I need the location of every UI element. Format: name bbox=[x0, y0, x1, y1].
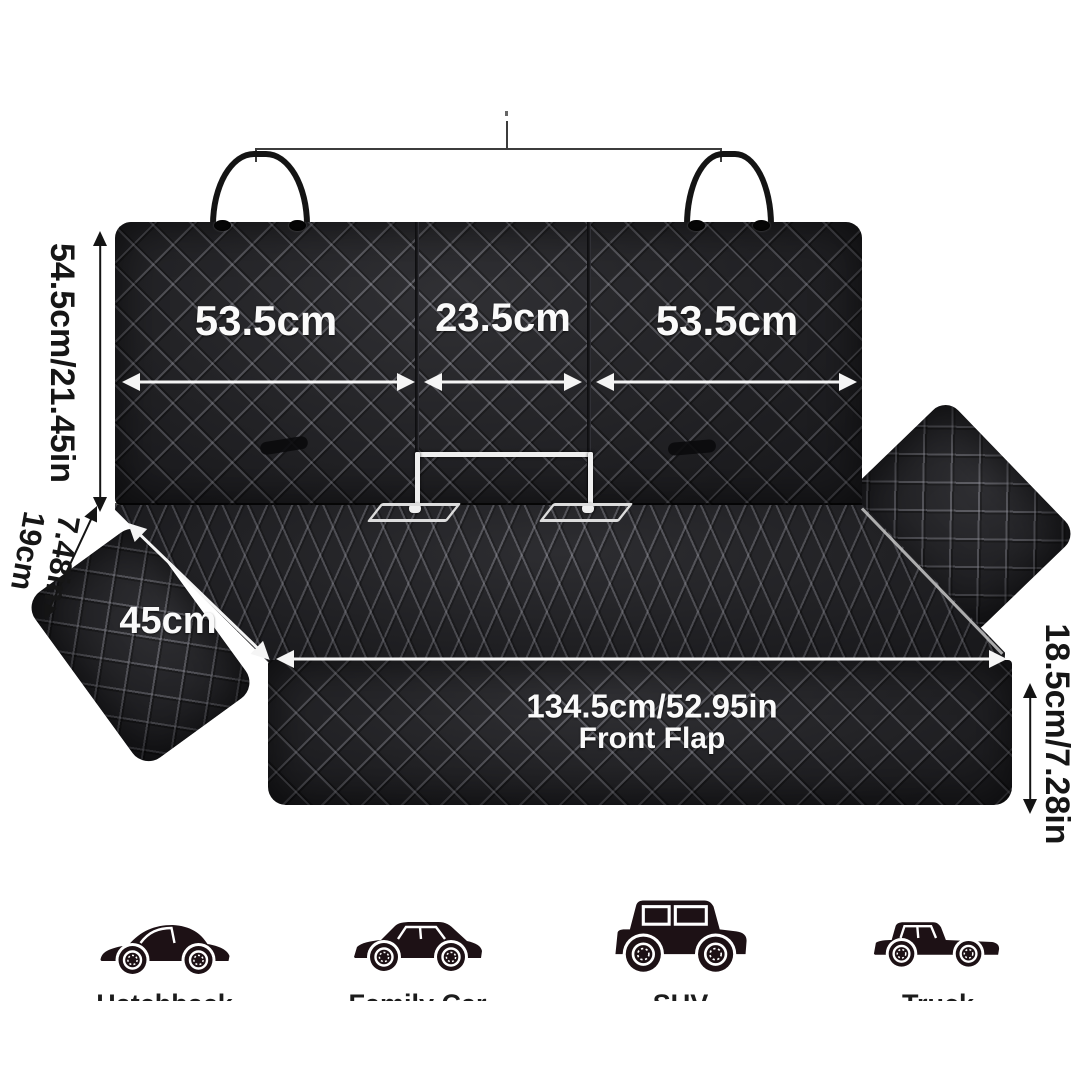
hanger-bracket-line bbox=[256, 148, 722, 150]
panel-bottom-seam bbox=[115, 503, 862, 505]
vehicle-label-family-car: Family Car bbox=[345, 991, 490, 1001]
back-width-left-label: 53.5cm bbox=[195, 300, 337, 342]
strap-grommet bbox=[753, 220, 770, 231]
dim-arrow-back-left bbox=[122, 373, 415, 391]
strap-grommet bbox=[214, 220, 231, 231]
dim-arrow-back-middle bbox=[424, 373, 582, 391]
back-width-middle-label: 23.5cm bbox=[435, 298, 571, 338]
front-flap-label: Front Flap bbox=[579, 724, 726, 754]
anchor-slot-outline-left bbox=[367, 503, 462, 522]
buckle-strap-leg-left bbox=[415, 452, 420, 510]
dim-arrow-back-height bbox=[93, 231, 107, 512]
buckle-strap-bar bbox=[415, 452, 593, 457]
hatchback-icon bbox=[92, 900, 237, 980]
seat-depth-label: 45cm bbox=[119, 602, 216, 640]
truck-icon bbox=[868, 896, 1006, 980]
vehicle-label-hatchback: Hatchback bbox=[92, 991, 237, 1001]
hanger-bracket-dot bbox=[505, 111, 508, 116]
back-height-label: 54.5cm/21.45in bbox=[45, 243, 79, 483]
hanger-bracket-tick-center bbox=[506, 121, 508, 150]
headrest-strap-left-icon bbox=[210, 151, 310, 231]
vehicle-label-truck: Truck bbox=[868, 991, 1008, 1001]
dim-arrow-back-right bbox=[596, 373, 857, 391]
back-panel bbox=[115, 222, 862, 505]
front-height-label: 18.5cm/7.28in bbox=[1040, 623, 1074, 844]
suv-icon bbox=[608, 886, 753, 981]
anchor-slot-outline-right bbox=[539, 503, 634, 522]
strap-grommet bbox=[688, 220, 705, 231]
family-car-icon bbox=[348, 898, 488, 978]
strap-grommet bbox=[289, 220, 306, 231]
headrest-strap-right-icon bbox=[684, 151, 774, 231]
front-width-label: 134.5cm/52.95in bbox=[526, 690, 777, 723]
dim-arrow-front-width bbox=[276, 650, 1007, 668]
vehicle-label-suv: SUV bbox=[608, 991, 753, 1001]
buckle-strap-leg-right bbox=[588, 452, 593, 510]
dim-arrow-front-height bbox=[1023, 683, 1037, 814]
back-width-right-label: 53.5cm bbox=[656, 300, 798, 342]
seat-cover-dimension-diagram: 53.5cm 23.5cm 53.5cm 45cm 134.5cm/52.95i… bbox=[0, 0, 1080, 1080]
